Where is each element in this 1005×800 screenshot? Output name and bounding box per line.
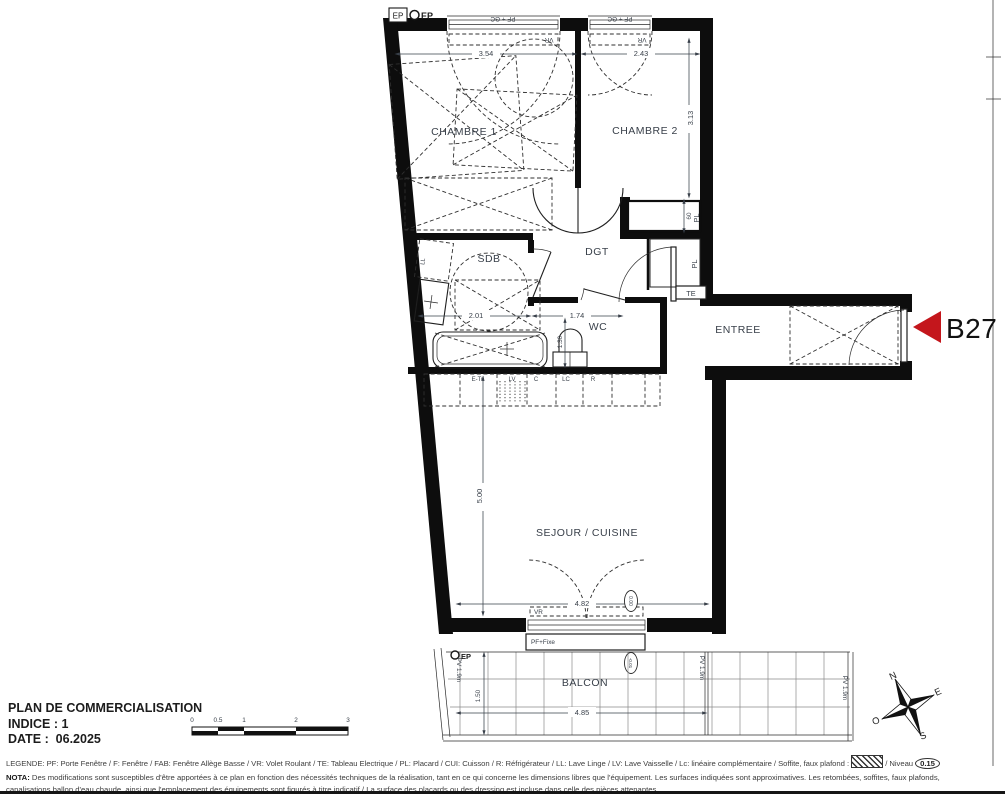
ep-tag: EP — [421, 11, 433, 21]
pv-tag-divider: PV 1.9m — [698, 656, 705, 681]
window-tag: PF + GC — [490, 15, 515, 22]
compass-o: O — [871, 715, 882, 728]
scale-2: 2 — [294, 717, 298, 724]
ep-tag: EP — [393, 12, 404, 21]
plan-date: DATE : 06.2025 — [8, 732, 101, 746]
wc-label: WC — [589, 321, 608, 333]
kitchen-label-cuisson: C — [534, 377, 539, 383]
unit-arrow — [913, 311, 941, 343]
dim-ch2-height: 3.13 — [686, 111, 695, 125]
compass-e: E — [933, 686, 943, 699]
legend: LEGENDE: PF: Porte Fenêtre / F: Fenêtre … — [6, 755, 1004, 769]
scale-1: 1 — [242, 717, 246, 724]
dim-sdb-width: 2.01 — [469, 311, 483, 320]
vr-tag: VR — [637, 36, 646, 43]
scale-bar: 0 0.5 1 2 3 — [190, 717, 350, 735]
pl-depth: 60 — [686, 212, 693, 220]
dim-wc-width: 1.74 — [570, 311, 584, 320]
scale-3: 3 — [346, 717, 350, 724]
plan-indice: INDICE : 1 — [8, 717, 68, 731]
vr-tag: VR — [534, 609, 543, 616]
kitchen-counter: E-Tri LV C LC R — [424, 374, 660, 406]
chambre1-label: CHAMBRE 1 — [431, 126, 497, 138]
kitchen-label-lc: LC — [562, 377, 570, 383]
compass-n: N — [888, 670, 899, 683]
unit-marker: B27 — [913, 311, 997, 344]
soffite-hatch-swatch — [851, 755, 883, 768]
ep-tag: EP — [461, 652, 471, 661]
kitchen-label-refrigerateur: R — [591, 377, 596, 383]
niveau-sample: 0.15 — [915, 758, 940, 769]
kitchen-label-sink: E-Tri — [472, 377, 485, 383]
plan-title: PLAN DE COMMERCIALISATION — [8, 701, 202, 715]
dim-sejour-height: 5.00 — [475, 489, 484, 503]
level-value: 0.00 — [627, 596, 633, 606]
te-tag: TE — [686, 289, 696, 298]
pl-tag: PL — [692, 213, 701, 222]
legend-text-2: / Niveau — [885, 759, 913, 768]
dim-ch2-width: 2.43 — [634, 49, 648, 58]
level-marker-sejour: 0.00 — [625, 591, 638, 612]
sdb-label: SDB — [477, 253, 500, 265]
window-tag: PF + GC — [607, 15, 632, 22]
compass-s: S — [918, 730, 928, 743]
nota-label: NOTA: — [6, 773, 30, 782]
dim-balcon-width: 4.85 — [575, 708, 589, 717]
sink-drainer — [500, 381, 525, 403]
kitchen-label-lv: LV — [509, 377, 516, 383]
bathtub — [433, 332, 547, 368]
chambre2-label: CHAMBRE 2 — [612, 125, 678, 137]
sejour-label: SEJOUR / CUISINE — [536, 527, 638, 539]
level-value: -0.01 — [628, 658, 633, 669]
title-block: PLAN DE COMMERCIALISATION INDICE : 1 DAT… — [8, 701, 202, 748]
dim-balcon-depth: 1.50 — [475, 689, 482, 702]
compass-rose: N E O S — [869, 667, 948, 748]
dim-sejour-width: 4.82 — [575, 599, 589, 608]
balcon-label: BALCON — [562, 677, 608, 689]
legend-text: LEGENDE: PF: Porte Fenêtre / F: Fenêtre … — [6, 759, 849, 768]
window-tag: PF+Fixe — [531, 639, 555, 646]
scale-05: 0.5 — [214, 717, 223, 724]
floor-plan: PF + GC VR PF + GC VR VR PF+Fixe — [0, 0, 1005, 800]
dgt-label: DGT — [585, 246, 609, 258]
ll-tag: LL — [420, 257, 427, 265]
pv-tag-right: PV 1.9m — [841, 676, 848, 701]
pv-tag-left: PV 1.9m — [455, 658, 462, 683]
unit-label: B27 — [946, 313, 997, 344]
placard-chambre2: PL 60 — [628, 201, 701, 231]
level-marker-balcon: -0.01 — [625, 653, 638, 674]
dim-wc-depth: 1.30 — [557, 335, 564, 348]
electrical-panel: TE — [676, 286, 706, 299]
sheet-border — [986, 0, 1001, 766]
pl-tag: PL — [690, 259, 699, 268]
washing-machine: LL — [415, 239, 454, 281]
dim-ch1-width: 3.54 — [479, 49, 493, 58]
window-chambre1: PF + GC VR — [447, 14, 560, 144]
oep-marker-balcony: EP — [451, 651, 471, 661]
balcony: BALCON 4.85 1.50 PV 1.9m PV 1.9m PV 1.9m… — [434, 648, 853, 741]
bottom-rule — [0, 791, 1005, 794]
entree-label: ENTREE — [715, 324, 761, 336]
